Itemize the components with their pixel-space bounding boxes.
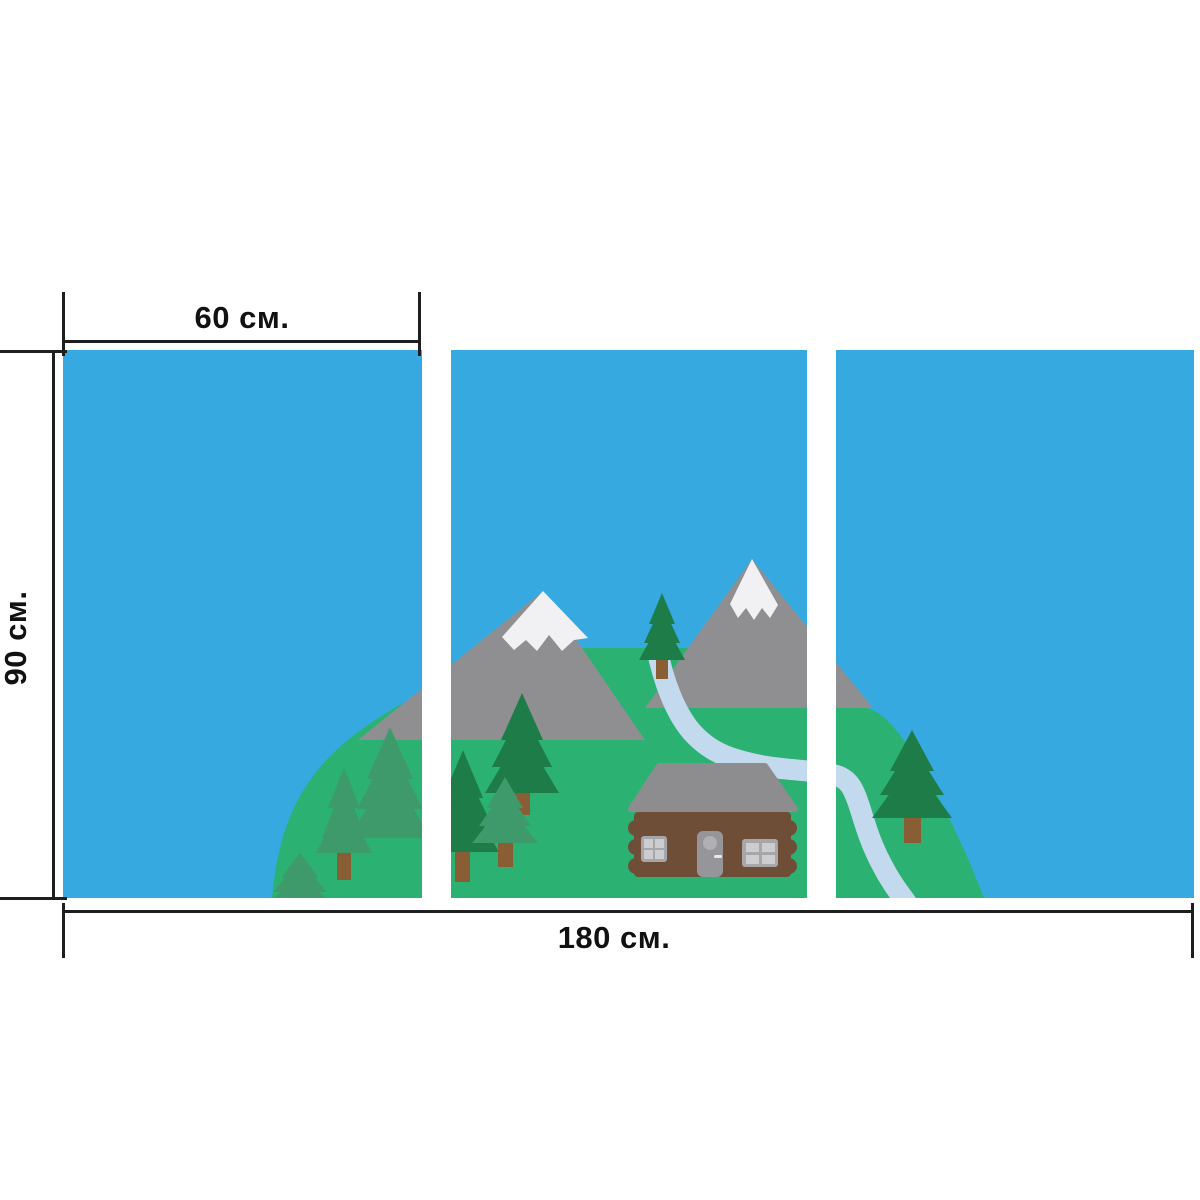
dim-tick-total-width-left <box>62 903 65 958</box>
dim-tick-panel-height-bottom <box>0 897 67 900</box>
dim-line-panel-width <box>63 340 421 343</box>
dim-line-panel-height <box>52 351 55 900</box>
panel-width-label: 60 см. <box>142 300 342 336</box>
triptych-panel-center <box>451 350 807 898</box>
total-width-label: 180 см. <box>514 920 714 956</box>
dim-tick-panel-height-top <box>0 350 67 353</box>
dim-tick-total-width-right <box>1191 903 1194 958</box>
dim-tick-panel-width-right <box>418 292 421 356</box>
triptych-panel-right <box>836 350 1194 898</box>
dim-line-total-width <box>63 910 1194 913</box>
panel-height-label: 90 см. <box>0 553 34 723</box>
triptych-panel-left <box>63 350 422 898</box>
dim-tick-panel-width-left <box>62 292 65 356</box>
triptych-mockup-page: { "labels": { "panel_width": "60 см.", "… <box>0 0 1200 1200</box>
